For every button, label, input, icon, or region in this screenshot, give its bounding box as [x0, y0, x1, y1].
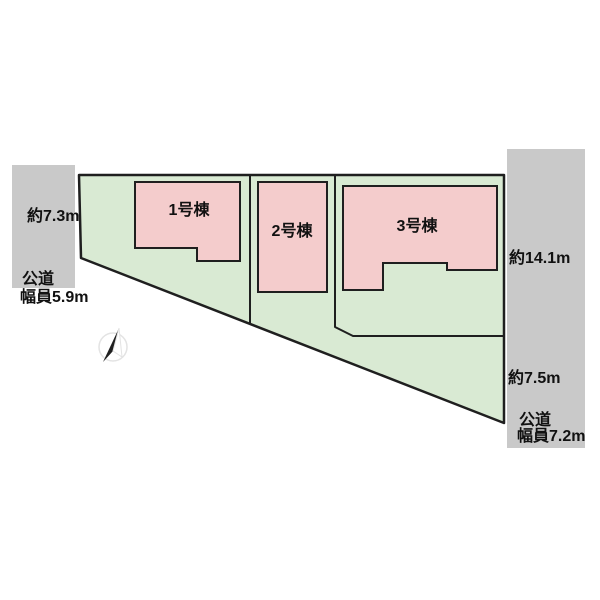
right-road-width-label: 幅員7.2m: [517, 426, 585, 445]
left-frontage-label: 約7.3m: [27, 206, 79, 225]
north-arrow-icon: [99, 328, 127, 362]
building-2-label: 2号棟: [272, 221, 314, 240]
site-plan-svg: 1号棟 2号棟 3号棟 約7.3m 公道 幅員5.9m 約14.1m 約7.5m…: [0, 0, 600, 600]
building-3-label: 3号棟: [397, 216, 439, 235]
left-road-type-label: 公道: [22, 269, 54, 288]
left-road-strip: [12, 165, 75, 288]
right-frontage-lower-label: 約7.5m: [508, 368, 560, 387]
left-road-width-label: 幅員5.9m: [20, 287, 88, 306]
right-road-type-label: 公道: [519, 410, 551, 429]
right-road-strip: [507, 149, 585, 448]
site-plan-diagram: 1号棟 2号棟 3号棟 約7.3m 公道 幅員5.9m 約14.1m 約7.5m…: [0, 0, 600, 600]
right-frontage-upper-label: 約14.1m: [509, 248, 570, 267]
building-1-label: 1号棟: [169, 200, 211, 219]
